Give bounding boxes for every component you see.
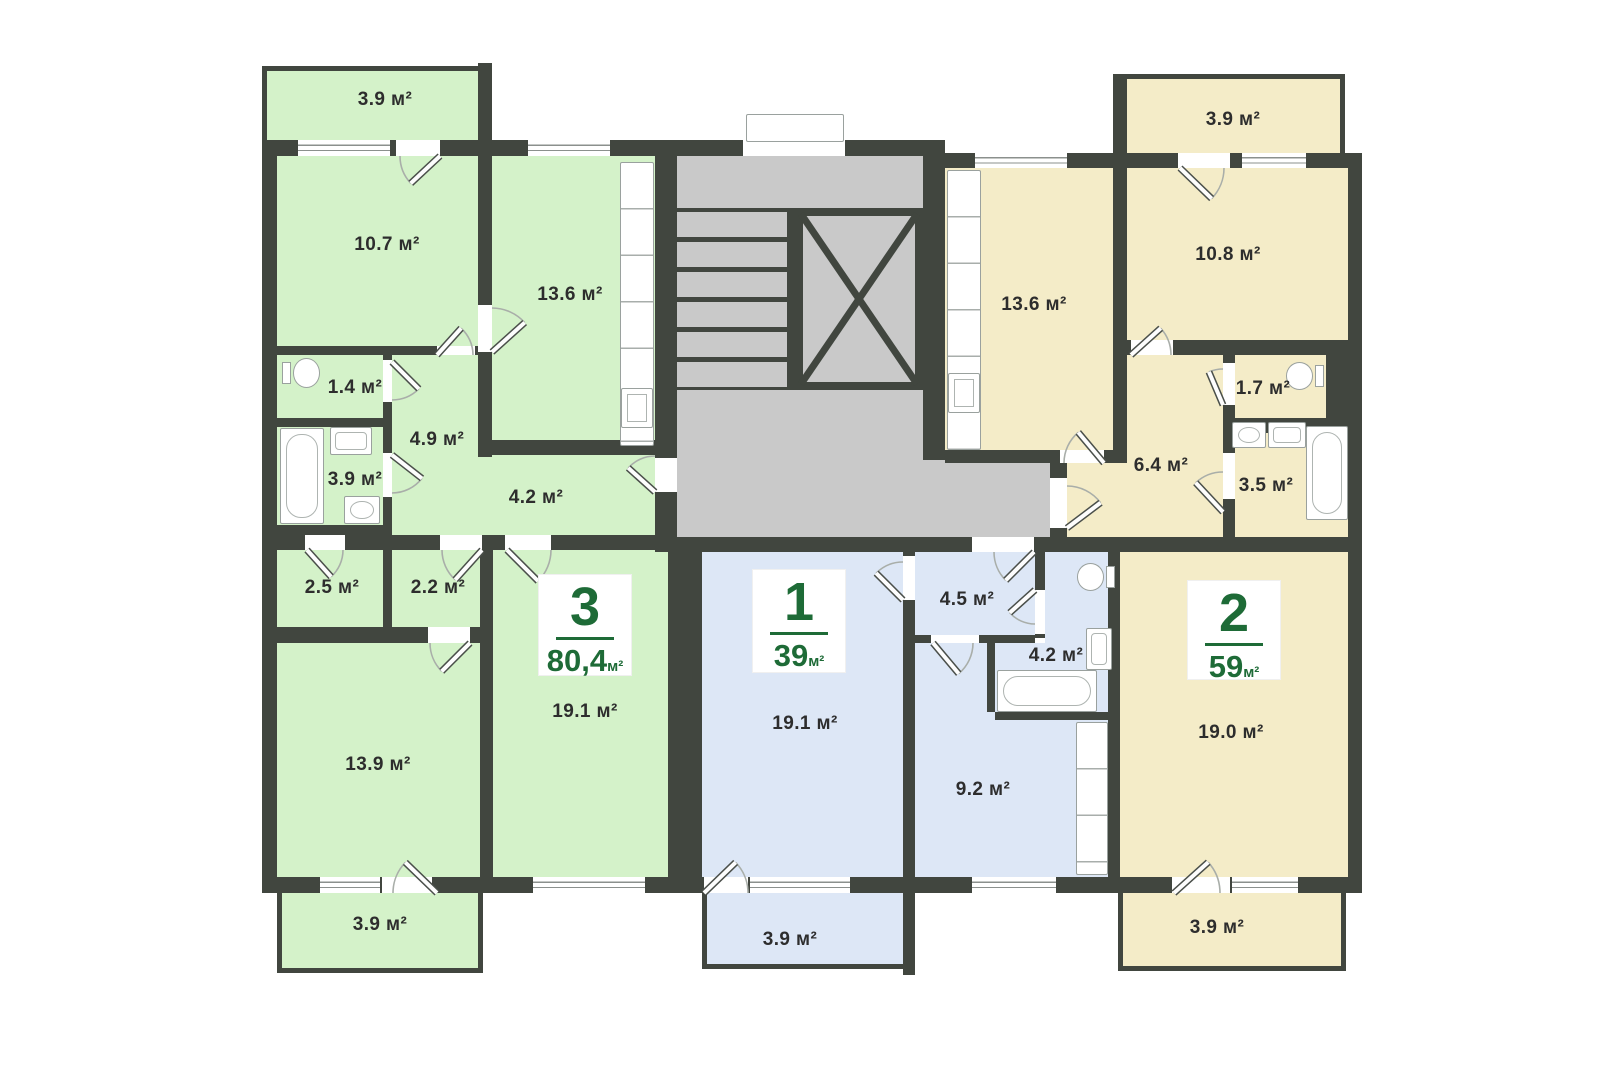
room-area-label: 4.9 м² (410, 429, 464, 451)
room-area-label: 3.9 м² (358, 89, 412, 111)
badge-divider (556, 637, 613, 640)
room-area-label: 13.6 м² (537, 284, 602, 306)
room-area-label: 9.2 м² (956, 779, 1010, 801)
room-area-label: 6.4 м² (1134, 455, 1188, 477)
room-area-label: 4.2 м² (1029, 645, 1083, 667)
room-area-label: 3.9 м² (763, 929, 817, 951)
apartment-total-area: 59м² (1188, 651, 1280, 682)
room-area-label: 1.7 м² (1236, 378, 1290, 400)
room-area-label: 3.9 м² (1206, 109, 1260, 131)
room-area-label: 10.8 м² (1195, 244, 1260, 266)
room-area-label: 4.2 м² (509, 487, 563, 509)
doors-layer (0, 0, 1620, 1080)
apartment-badge-3: 380,4м² (539, 575, 631, 675)
room-area-label: 3.9 м² (1190, 917, 1244, 939)
area-unit: м² (607, 658, 623, 675)
apartment-badge-1: 139м² (753, 570, 845, 672)
room-area-label: 19.1 м² (552, 701, 617, 723)
room-area-label: 3.9 м² (353, 914, 407, 936)
apartment-number: 1 (753, 575, 845, 629)
badge-divider (770, 632, 827, 635)
room-area-label: 2.2 м² (411, 577, 465, 599)
room-area-label: 3.5 м² (1239, 475, 1293, 497)
badge-divider (1205, 643, 1262, 646)
room-area-label: 4.5 м² (940, 589, 994, 611)
apartment-total-area: 80,4м² (539, 645, 631, 676)
apartment-total-area: 39м² (753, 640, 845, 671)
apartment-number: 3 (539, 580, 631, 634)
room-area-label: 13.9 м² (345, 754, 410, 776)
area-unit: м² (808, 653, 824, 670)
room-area-label: 1.4 м² (328, 377, 382, 399)
room-area-label: 19.0 м² (1198, 722, 1263, 744)
floor-plan: 380,4м²139м²259м²3.9 м²10.7 м²13.6 м²1.4… (0, 0, 1620, 1080)
apartment-badge-2: 259м² (1188, 581, 1280, 679)
room-area-label: 19.1 м² (772, 713, 837, 735)
room-area-label: 13.6 м² (1001, 294, 1066, 316)
apartment-number: 2 (1188, 586, 1280, 640)
room-area-label: 2.5 м² (305, 577, 359, 599)
area-unit: м² (1243, 664, 1259, 681)
room-area-label: 3.9 м² (328, 469, 382, 491)
room-area-label: 10.7 м² (354, 234, 419, 256)
